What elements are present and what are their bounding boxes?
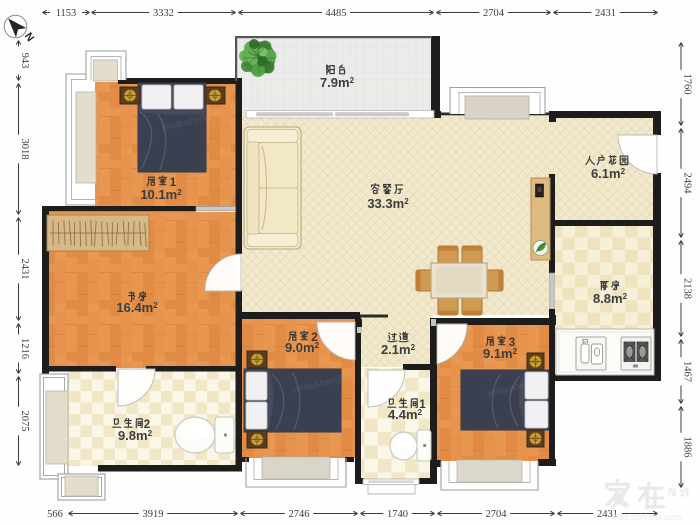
svg-text:8.8m2: 8.8m2 — [593, 291, 628, 306]
svg-text:1740: 1740 — [387, 509, 408, 520]
svg-text:2431: 2431 — [19, 259, 30, 280]
svg-text:7.9m2: 7.9m2 — [320, 75, 355, 90]
svg-text:33.3m2: 33.3m2 — [367, 196, 409, 211]
svg-text:3018: 3018 — [19, 139, 30, 160]
svg-text:1153: 1153 — [56, 8, 77, 19]
svg-text:9.8m2: 9.8m2 — [118, 428, 153, 443]
svg-text:2494: 2494 — [681, 173, 692, 195]
svg-text:2704: 2704 — [483, 8, 505, 19]
svg-text:10.1m2: 10.1m2 — [140, 187, 182, 202]
svg-text:3919: 3919 — [143, 509, 164, 520]
svg-text:943: 943 — [19, 53, 30, 69]
svg-text:1467: 1467 — [681, 361, 692, 382]
svg-text:9.0m2: 9.0m2 — [285, 340, 320, 355]
svg-text:3332: 3332 — [153, 8, 174, 19]
svg-text:1216: 1216 — [19, 338, 30, 359]
svg-text:6.1m2: 6.1m2 — [591, 166, 626, 181]
svg-text:1760: 1760 — [681, 74, 692, 95]
svg-text:2704: 2704 — [486, 509, 508, 520]
svg-text:16.4m2: 16.4m2 — [116, 300, 158, 315]
svg-text:2431: 2431 — [595, 8, 616, 19]
svg-text:2138: 2138 — [681, 278, 692, 299]
svg-text:2075: 2075 — [19, 411, 30, 432]
svg-text:9.1m2: 9.1m2 — [483, 346, 518, 361]
svg-text:566: 566 — [47, 509, 63, 520]
svg-text:bbs.szhome.com: bbs.szhome.com — [614, 512, 682, 522]
svg-text:2746: 2746 — [289, 509, 310, 520]
svg-text:4485: 4485 — [326, 8, 347, 19]
svg-text:4.4m2: 4.4m2 — [388, 407, 423, 422]
svg-text:2.1m2: 2.1m2 — [381, 342, 416, 357]
svg-text:1886: 1886 — [681, 437, 692, 458]
